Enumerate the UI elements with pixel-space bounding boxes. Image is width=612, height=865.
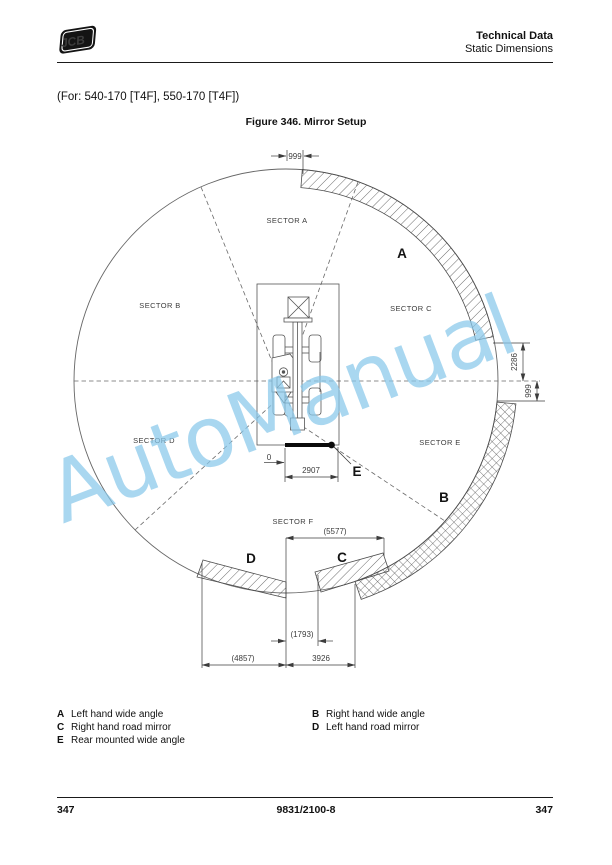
sector-f-label: SECTOR F: [273, 517, 314, 526]
sector-boundary-lines: [74, 182, 540, 530]
sector-e-label: SECTOR E: [419, 438, 460, 447]
mirror-key-c: C: [337, 550, 347, 565]
dim-right-total: 3926: [312, 654, 330, 663]
mirror-key-a: A: [397, 246, 407, 261]
sector-d-label: SECTOR D: [133, 436, 175, 445]
dim-rear-width: 2907: [302, 466, 320, 475]
sector-b-label: SECTOR B: [139, 301, 180, 310]
dim-left-total: (4857): [231, 654, 254, 663]
rear-mirror-bar: [285, 443, 332, 447]
dim-gap: (1793): [290, 630, 313, 639]
machine-top-view: [257, 284, 339, 445]
sector-a-label: SECTOR A: [267, 216, 308, 225]
dim-right-upper: 2286: [510, 353, 519, 371]
mirror-key-e: E: [352, 464, 361, 479]
mirror-zone-d-band: [197, 560, 286, 598]
manual-page: JCB Technical Data Static Dimensions (Fo…: [0, 0, 612, 865]
dim-span-total: (5577): [323, 527, 346, 536]
dim-right-lower: 999: [524, 384, 533, 398]
mirror-key-d: D: [246, 551, 256, 566]
dim-top-offset: 999: [288, 152, 302, 161]
mirror-setup-diagram: 999 2286 999 0 2907 (5577) (1793) (4857)…: [0, 0, 612, 865]
dim-zero-ref: 0: [267, 453, 272, 462]
mirror-key-b: B: [439, 490, 449, 505]
e-leader-line: [334, 447, 351, 464]
fork-carriage: [284, 297, 312, 322]
sector-c-label: SECTOR C: [390, 304, 432, 313]
